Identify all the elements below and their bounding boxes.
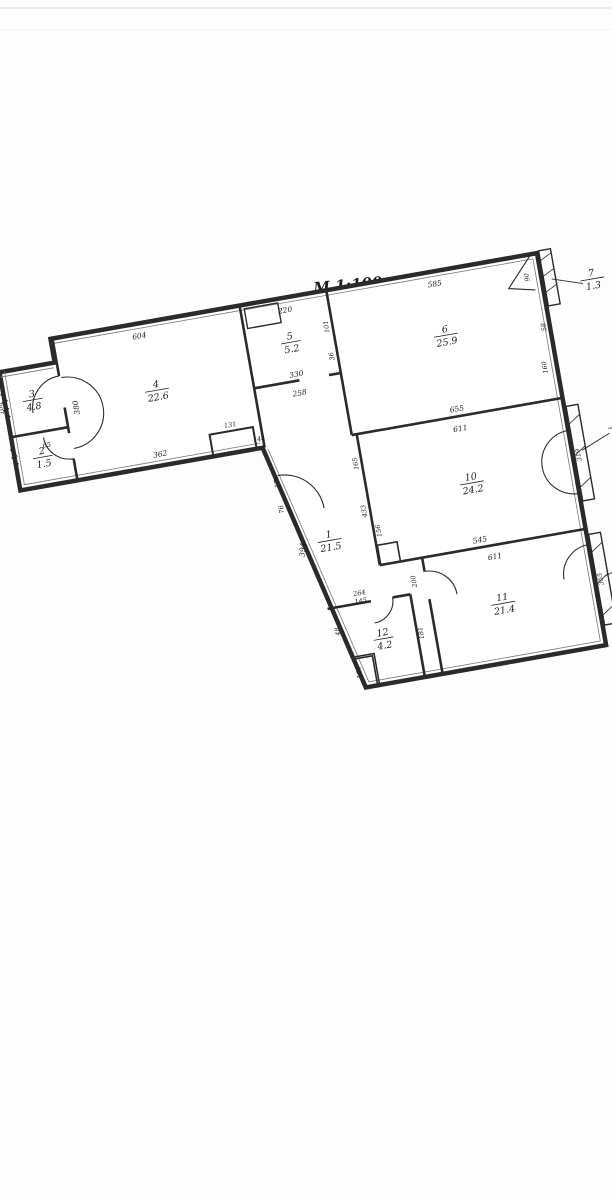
svg-text:1.3: 1.3 bbox=[585, 280, 602, 293]
floor-plan-svg: 604 380 362 131 144 220 101 36 330 258 5… bbox=[0, 223, 612, 767]
page-edge-line-top bbox=[0, 7, 612, 9]
dim-balcony7-a: 90 bbox=[522, 272, 531, 282]
room-label-7: 7 1.3 bbox=[579, 266, 607, 294]
svg-text:7: 7 bbox=[587, 267, 596, 279]
dim-room12-left: 48 bbox=[333, 627, 342, 638]
page: { "title": "M 1:100", "rooms": [ {"num":… bbox=[0, 0, 612, 1200]
dim-balcony9-side: 355 bbox=[596, 572, 606, 586]
room-label-8: 8 1.0 bbox=[607, 413, 612, 441]
floor-plan: 604 380 362 131 144 220 101 36 330 258 5… bbox=[0, 223, 612, 767]
outer-wall bbox=[0, 253, 606, 740]
dim-corridor-diagonal: 394 bbox=[298, 542, 308, 557]
dim-balcony7-b: 58 bbox=[539, 322, 548, 332]
dim-room5-right-b: 36 bbox=[327, 352, 336, 362]
page-edge-line-second bbox=[0, 29, 612, 30]
dim-corridor-left-b: 76 bbox=[277, 505, 286, 515]
